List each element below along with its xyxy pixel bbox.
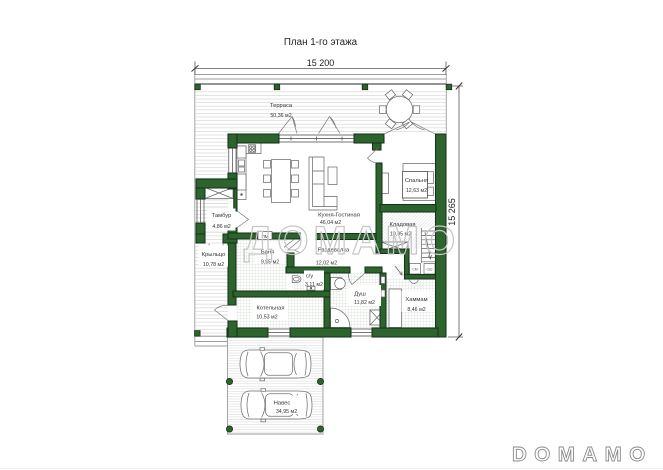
svg-text:10,78 м2: 10,78 м2	[203, 262, 224, 268]
svg-text:Котельная: Котельная	[256, 306, 284, 312]
svg-text:СМ: СМ	[412, 268, 418, 272]
svg-text:Душ: Душ	[354, 292, 366, 298]
svg-text:Тамбур: Тамбур	[212, 213, 232, 219]
svg-text:4,86 м2: 4,86 м2	[212, 224, 230, 230]
svg-text:11,82 м2: 11,82 м2	[354, 300, 375, 306]
svg-text:Навес: Навес	[274, 401, 291, 407]
svg-text:с/у: с/у	[306, 274, 314, 280]
svg-text:12,63 м2: 12,63 м2	[406, 188, 427, 194]
svg-text:15 200: 15 200	[307, 58, 335, 68]
svg-text:8,46 м2: 8,46 м2	[407, 307, 425, 313]
svg-text:10,53 м2: 10,53 м2	[256, 315, 277, 321]
svg-text:DOMAMO: DOMAMO	[512, 443, 653, 466]
svg-text:50,36 м2: 50,36 м2	[270, 113, 291, 119]
svg-text:СШ: СШ	[427, 268, 433, 272]
svg-text:Хаммам: Хаммам	[405, 297, 427, 303]
svg-text:ДОМАМО: ДОМАМО	[244, 219, 460, 263]
svg-text:Кухня-Гостиная: Кухня-Гостиная	[318, 213, 360, 219]
svg-text:34,95 м2: 34,95 м2	[276, 409, 297, 415]
svg-text:Терраса: Терраса	[270, 103, 293, 109]
svg-text:Спальня: Спальня	[405, 178, 428, 184]
svg-text:Крыльцо: Крыльцо	[202, 252, 226, 258]
svg-text:3,11 м2: 3,11 м2	[305, 282, 323, 288]
svg-text:План 1-го этажа: План 1-го этажа	[284, 37, 358, 48]
